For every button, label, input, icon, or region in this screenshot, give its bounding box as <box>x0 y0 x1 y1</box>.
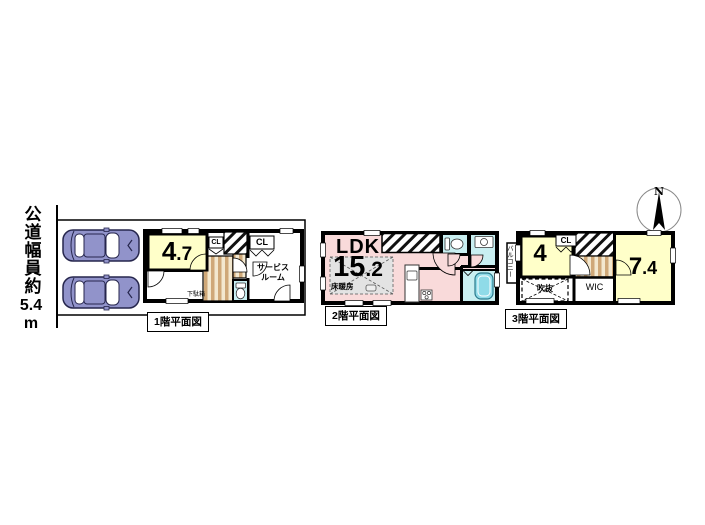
room-right-size-label: 7.4 <box>621 254 665 279</box>
toilet-icon <box>451 239 463 249</box>
room-size-main: 4 <box>162 236 176 266</box>
ldk-size-dec: .2 <box>365 258 383 281</box>
stairs-upper-cut-icon <box>575 233 614 256</box>
ldk-size-main: 15 <box>333 251 365 283</box>
closet-large-label: CL <box>250 238 274 247</box>
window <box>280 229 293 234</box>
road-width-unit: m <box>24 315 38 333</box>
window <box>618 299 640 304</box>
window <box>321 243 326 257</box>
toilet-icon <box>236 283 246 288</box>
road-width-label: 公道幅員約 5.4 m <box>14 205 48 333</box>
service-room-line2: ルーム <box>261 273 285 282</box>
window <box>373 301 391 306</box>
floorplan-page: 公道幅員約 5.4 m <box>0 0 705 525</box>
floor1-title: 1階平面図 <box>147 312 209 332</box>
closet-label-3f: CL <box>556 237 576 245</box>
stove-icon <box>421 290 432 300</box>
room-right-main: 7 <box>629 253 642 280</box>
car-icon <box>63 275 139 310</box>
closet-small-label: CL <box>209 239 223 246</box>
room-size-label-1f: 4.7 <box>148 238 206 265</box>
window <box>364 231 380 236</box>
heating-controller-icon <box>366 285 376 291</box>
room-left-size-label: 4 <box>526 241 554 266</box>
wic-label: WIC <box>578 283 611 292</box>
window <box>162 229 182 234</box>
window <box>530 231 545 236</box>
kitchen-counter <box>405 265 419 302</box>
service-room-line1: サービス <box>257 263 289 272</box>
window <box>345 301 363 306</box>
window <box>671 248 676 263</box>
window <box>495 273 500 287</box>
floor2-title: 2階平面図 <box>325 306 387 326</box>
window <box>516 245 521 261</box>
stairs-upper-cut-icon <box>224 232 247 254</box>
road-width-kanji: 公道幅員約 <box>19 205 44 295</box>
sink-icon <box>481 239 488 246</box>
window <box>188 229 199 234</box>
car-icon <box>63 228 139 263</box>
ldk-size-label: 15.2 <box>328 252 388 282</box>
stairs-icon <box>382 234 440 253</box>
window <box>321 277 326 290</box>
window <box>647 231 661 236</box>
window <box>300 266 305 282</box>
compass-north-label: N <box>652 186 666 198</box>
toilet-icon <box>445 238 450 250</box>
kitchen-sink-icon <box>407 271 417 280</box>
window <box>526 299 554 304</box>
balcony-label: バルコニー <box>505 245 512 285</box>
void-label: 吹抜 <box>531 285 559 293</box>
service-room-label: サービス ルーム <box>252 263 294 282</box>
shoe-cabinet-label: 下駄箱 <box>183 292 209 298</box>
room-size-dec: .7 <box>176 244 192 265</box>
floor-heating-label: 床暖房 <box>331 283 354 291</box>
room-right-dec: .4 <box>642 258 657 278</box>
toilet-icon <box>236 288 245 299</box>
road-width-number: 5.4 <box>20 297 42 315</box>
floor3-title: 3階平面図 <box>505 309 567 329</box>
window <box>166 299 188 304</box>
